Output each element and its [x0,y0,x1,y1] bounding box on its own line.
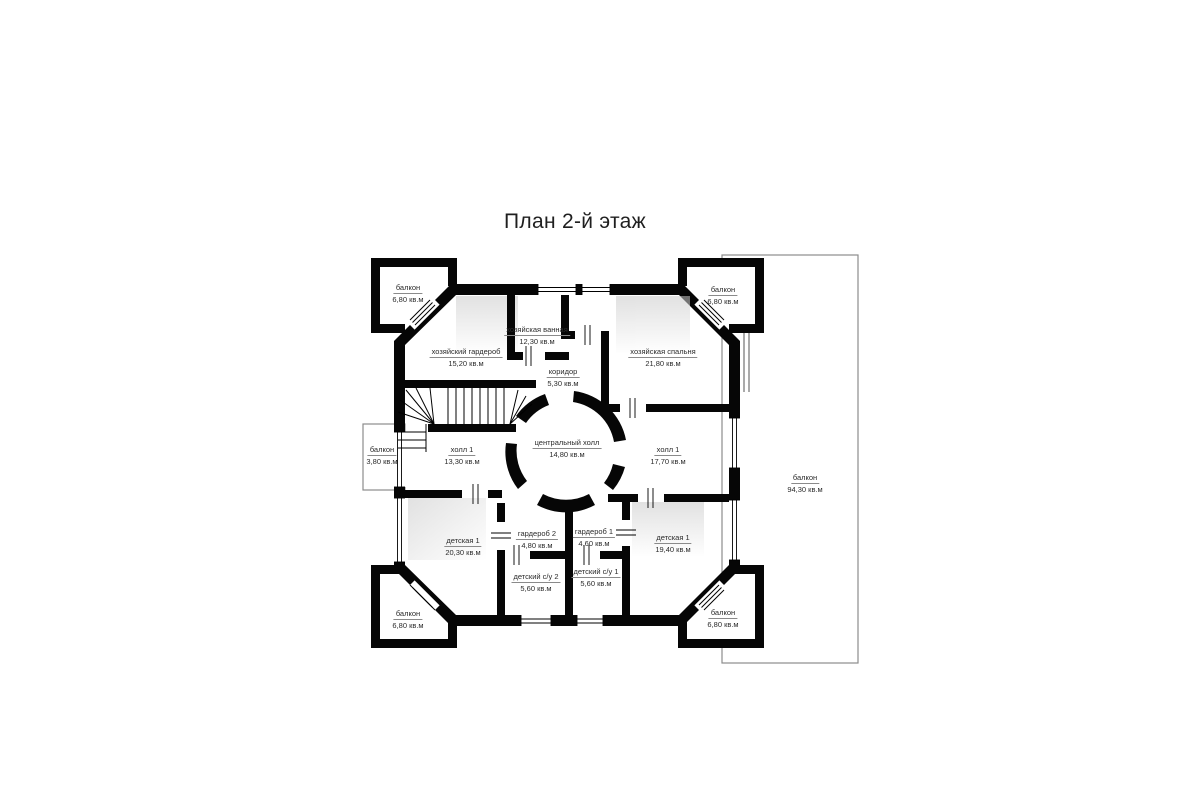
room-label-master-wardrobe: хозяйский гардероб 15,20 кв.м [430,347,503,369]
room-label-hall-left: холл 1 13,30 кв.м [444,445,479,467]
room-label-nursery-right: детская 1 19,40 кв.м [654,533,691,555]
room-label-hall-right: холл 1 17,70 кв.м [650,445,685,467]
floor-plan-drawing [0,0,1200,800]
room-label-kids-bathroom-2: детский с/у 2 5,60 кв.м [512,572,561,594]
room-label-balcony-top-right: балкон 6,80 кв.м [707,285,738,307]
room-label-balcony-bottom-right: балкон 6,80 кв.м [707,608,738,630]
room-label-kids-bathroom-1: детский с/у 1 5,60 кв.м [572,567,621,589]
room-label-central-hall: центральный холл 14,80 кв.м [533,438,602,460]
floor-plan-page: План 2-й этаж [0,0,1200,800]
room-label-balcony-big-right: балкон 94,30 кв.м [787,473,822,495]
room-label-balcony-left: балкон 3,80 кв.м [366,445,397,467]
room-label-master-bedroom: хозяйская спальня 21,80 кв.м [628,347,697,369]
staircase [398,388,532,452]
room-label-wardrobe-2: гардероб 2 4,80 кв.м [516,529,558,551]
room-label-nursery-left: детская 1 20,30 кв.м [444,536,481,558]
room-label-master-bathroom: хозяйская ванная 12,30 кв.м [504,325,570,347]
room-label-balcony-top-left: балкон 6,80 кв.м [392,283,423,305]
room-label-balcony-bottom-left: балкон 6,80 кв.м [392,609,423,631]
room-label-wardrobe-1: гардероб 1 4,60 кв.м [573,527,615,549]
room-label-corridor: коридор 5,30 кв.м [547,367,580,389]
